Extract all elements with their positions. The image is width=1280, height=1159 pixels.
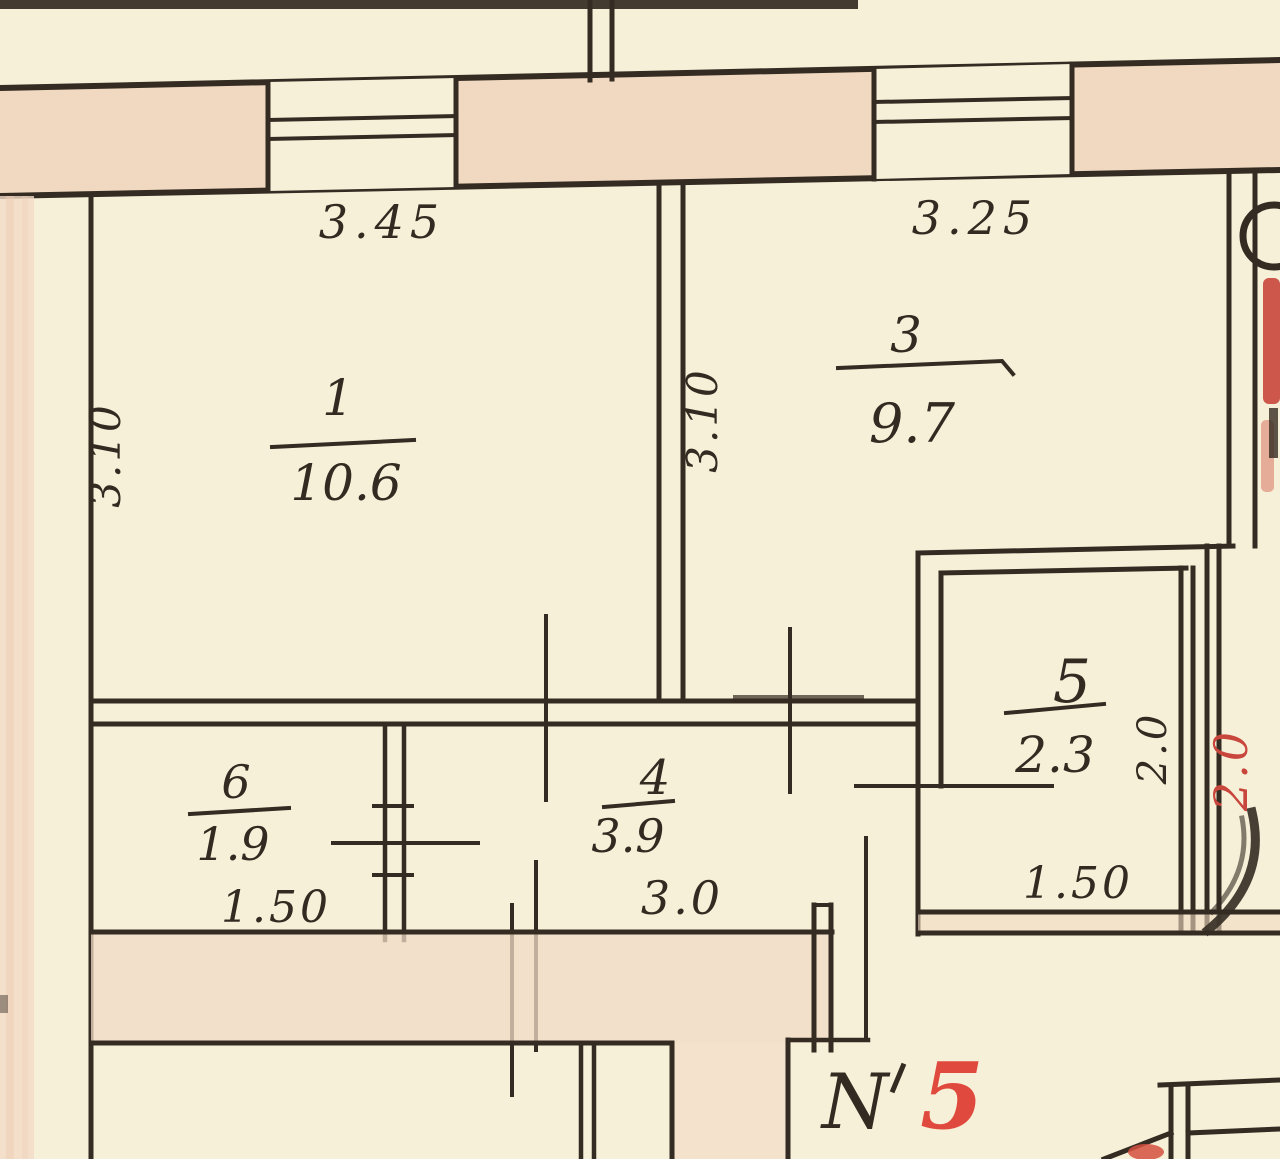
red-pencil-mark (1263, 278, 1280, 404)
window-1 (268, 78, 456, 191)
wall-fill (91, 932, 832, 1043)
dim-room3-depth: 3.10 (678, 367, 727, 473)
floor-plan-page: 3.45 3.25 3.10 3.10 1 10.6 3 9.7 4 3.9 3… (0, 0, 1280, 1159)
wall-hatch (22, 196, 28, 1159)
room-3-area: 9.7 (869, 392, 956, 455)
dim-room6-width: 1.50 (221, 882, 331, 933)
adjacent-structure-edge (0, 0, 858, 9)
room-1-area: 10.6 (290, 454, 401, 512)
floor-plan-drawing: 3.45 3.25 3.10 3.10 1 10.6 3 9.7 4 3.9 3… (0, 0, 1280, 1159)
dim-room5-width: 1.50 (1023, 858, 1133, 909)
wall-fill (0, 196, 34, 1159)
window-2 (874, 64, 1072, 179)
dim-room5-depth-red: 2.0 (1204, 729, 1258, 812)
apartment-number-value: 5 (920, 1042, 984, 1150)
apartment-number-prefix: N (820, 1057, 891, 1146)
dim-room1-depth: 3.10 (81, 402, 130, 508)
room-3-number: 3 (890, 306, 922, 364)
dim-room3-width: 3.25 (912, 191, 1038, 245)
room-5-area: 2.3 (1014, 726, 1095, 784)
corridor-fill (672, 1043, 788, 1159)
room-1-number: 1 (322, 369, 354, 427)
dim-room5-depth: 2.0 (1130, 712, 1176, 786)
scan-mark (0, 995, 8, 1013)
room-6-number: 6 (221, 755, 250, 809)
ink-mark (1269, 408, 1278, 458)
room-4-number: 4 (639, 750, 671, 806)
dim-room4-width: 3.0 (641, 871, 723, 925)
room-4-area: 3.9 (591, 809, 664, 863)
dim-room1-width: 3.45 (319, 195, 445, 249)
wall-hatch (6, 196, 14, 1159)
room-6-area: 1.9 (196, 817, 269, 871)
